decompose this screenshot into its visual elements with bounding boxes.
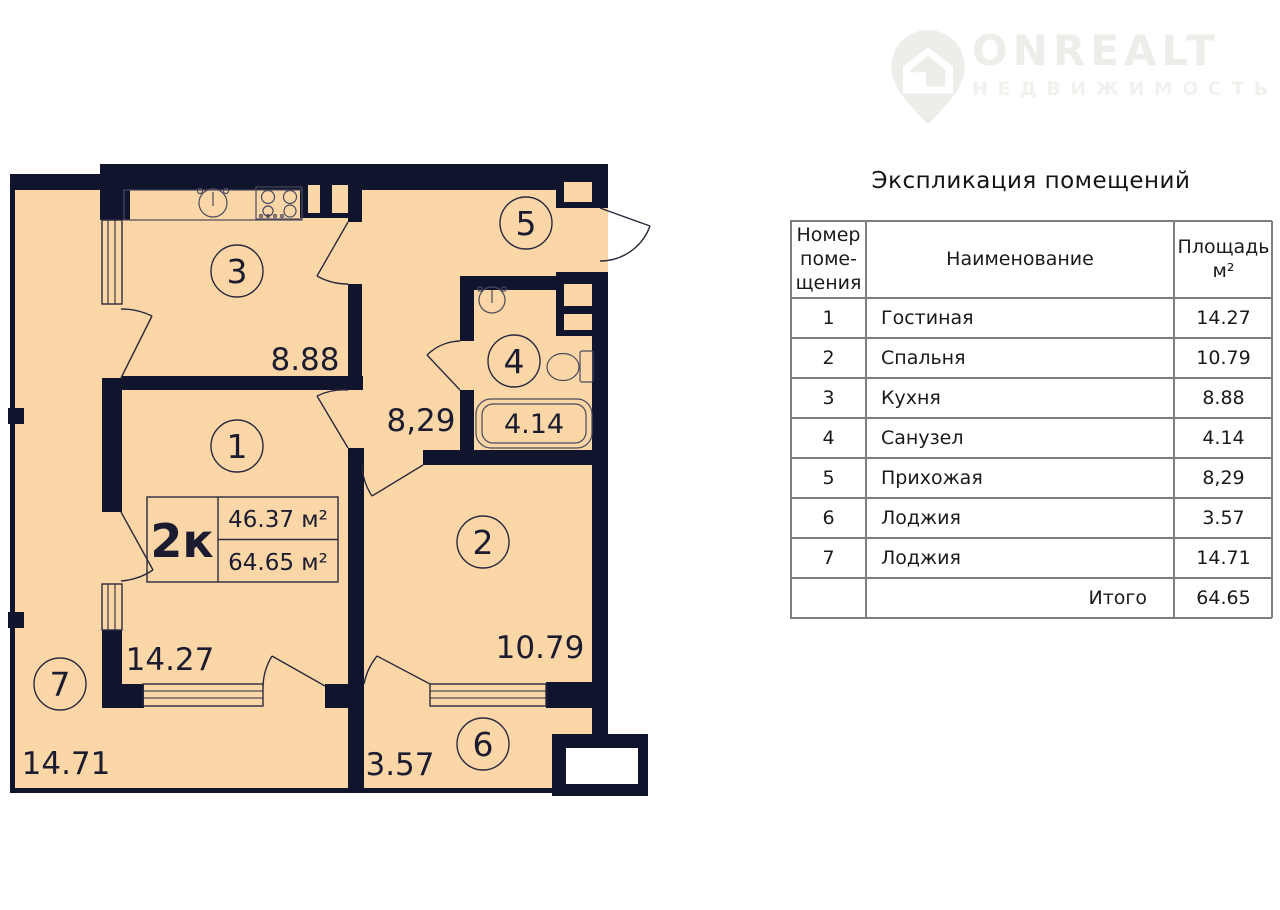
total-label: Итого <box>866 578 1174 618</box>
explication-table: Номер поме- щения Наименование Площадь м… <box>790 220 1272 619</box>
room-2-area-label: 10.79 <box>496 630 585 666</box>
room-3-area-label: 8.88 <box>270 342 339 378</box>
row-name: Прихожая <box>866 458 1174 498</box>
onrealt-logo: ONREALT НЕДВИЖИМОСТЬ <box>880 22 1260 122</box>
table-row: 4 Санузел 4.14 <box>791 418 1271 458</box>
logo-subtitle: НЕДВИЖИМОСТЬ <box>972 78 1252 100</box>
row-num: 3 <box>791 378 866 418</box>
row-num: 6 <box>791 498 866 538</box>
table-header-row: Номер поме- щения Наименование Площадь м… <box>791 221 1271 298</box>
row-area: 10.79 <box>1174 338 1273 378</box>
row-name: Санузел <box>866 418 1174 458</box>
row-area: 14.27 <box>1174 298 1273 338</box>
row-area: 3.57 <box>1174 498 1273 538</box>
room-1-area-label: 14.27 <box>126 642 215 678</box>
total-empty <box>791 578 866 618</box>
room-6-area-label: 3.57 <box>365 747 434 783</box>
svg-text:7: 7 <box>50 665 71 704</box>
total-value: 64.65 <box>1174 578 1273 618</box>
table-row: 1 Гостиная 14.27 <box>791 298 1271 338</box>
logo-name: ONREALT <box>972 30 1252 72</box>
svg-text:6: 6 <box>473 725 494 764</box>
flat-type-label: 2к <box>150 514 213 568</box>
room-4-area-label: 4.14 <box>504 409 564 440</box>
total-area-label: 64.65 м² <box>228 550 328 576</box>
row-name: Гостиная <box>866 298 1174 338</box>
explication-title: Экспликация помещений <box>790 168 1272 194</box>
floor-plan: 1 2 3 4 5 6 7 14.27 10.79 8.88 <box>0 0 680 910</box>
header-number: Номер поме- щения <box>791 221 866 298</box>
table-row: 7 Лоджия 14.71 <box>791 538 1271 578</box>
table-row: 2 Спальня 10.79 <box>791 338 1271 378</box>
logo-pin-house-icon <box>888 28 968 128</box>
room-7-area-label: 14.71 <box>22 746 111 782</box>
shaft-opening <box>566 748 638 784</box>
table-row: 5 Прихожая 8,29 <box>791 458 1271 498</box>
row-num: 5 <box>791 458 866 498</box>
table-row: 6 Лоджия 3.57 <box>791 498 1271 538</box>
row-num: 1 <box>791 298 866 338</box>
room-5-area-label: 8,29 <box>386 403 455 439</box>
svg-text:3: 3 <box>227 252 248 291</box>
table-row: 3 Кухня 8.88 <box>791 378 1271 418</box>
header-area: Площадь м² <box>1174 221 1273 298</box>
row-name: Кухня <box>866 378 1174 418</box>
row-area: 14.71 <box>1174 538 1273 578</box>
header-name: Наименование <box>866 221 1174 298</box>
row-area: 8.88 <box>1174 378 1273 418</box>
living-area-label: 46.37 м² <box>228 507 328 533</box>
row-num: 4 <box>791 418 866 458</box>
row-name: Спальня <box>866 338 1174 378</box>
explication-panel: Экспликация помещений Номер поме- щения … <box>790 168 1272 619</box>
svg-text:4: 4 <box>504 342 525 381</box>
row-num: 2 <box>791 338 866 378</box>
svg-text:1: 1 <box>227 427 248 466</box>
row-area: 8,29 <box>1174 458 1273 498</box>
svg-text:5: 5 <box>516 204 537 243</box>
row-name: Лоджия <box>866 498 1174 538</box>
row-area: 4.14 <box>1174 418 1273 458</box>
row-name: Лоджия <box>866 538 1174 578</box>
table-total-row: Итого 64.65 <box>791 578 1271 618</box>
row-num: 7 <box>791 538 866 578</box>
svg-text:2: 2 <box>473 523 494 562</box>
